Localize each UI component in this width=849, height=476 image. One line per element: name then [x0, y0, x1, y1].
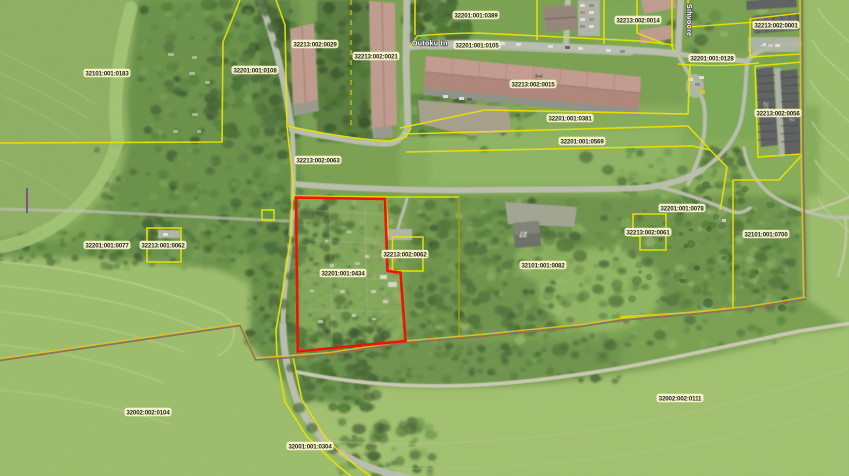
svg-text:32213:002:0056: 32213:002:0056: [756, 110, 800, 117]
svg-text:32213:002:0014: 32213:002:0014: [616, 17, 660, 24]
svg-text:32201:001:0078: 32201:001:0078: [660, 205, 704, 212]
svg-text:Sihvoore: Sihvoore: [685, 4, 692, 36]
svg-text:32213:002:0015: 32213:002:0015: [511, 81, 555, 88]
svg-text:32101:001:0183: 32101:001:0183: [85, 70, 129, 77]
svg-text:32002:002:0111: 32002:002:0111: [659, 395, 702, 402]
svg-text:32213:001:0062: 32213:001:0062: [141, 242, 185, 249]
svg-text:32001:001:0304: 32001:001:0304: [288, 443, 332, 450]
svg-text:32201:001:0381: 32201:001:0381: [548, 115, 592, 122]
svg-text:32213:002:0063: 32213:002:0063: [296, 157, 340, 164]
svg-text:32213:002:0062: 32213:002:0062: [383, 251, 427, 258]
svg-text:32201:001:0389: 32201:001:0389: [454, 12, 498, 19]
svg-text:Outoku tn: Outoku tn: [412, 41, 448, 48]
svg-text:32201:001:0105: 32201:001:0105: [455, 42, 499, 49]
svg-text:32201:001:0077: 32201:001:0077: [85, 242, 129, 249]
svg-text:32101:001:0700: 32101:001:0700: [744, 231, 788, 238]
svg-text:32213:002:0061: 32213:002:0061: [626, 229, 670, 236]
svg-text:32002:002:0104: 32002:002:0104: [126, 409, 170, 416]
svg-text:32213:002:0021: 32213:002:0021: [354, 53, 398, 60]
svg-text:32213:002:0029: 32213:002:0029: [293, 41, 337, 48]
svg-text:32201:001:0434: 32201:001:0434: [321, 270, 365, 277]
svg-text:32101:001:0082: 32101:001:0082: [521, 262, 565, 269]
svg-text:32201:001:0128: 32201:001:0128: [690, 55, 734, 62]
svg-text:32201:001:0569: 32201:001:0569: [560, 138, 604, 145]
svg-text:32213:002:0001: 32213:002:0001: [754, 22, 798, 29]
svg-text:32201:001:0108: 32201:001:0108: [233, 67, 277, 74]
